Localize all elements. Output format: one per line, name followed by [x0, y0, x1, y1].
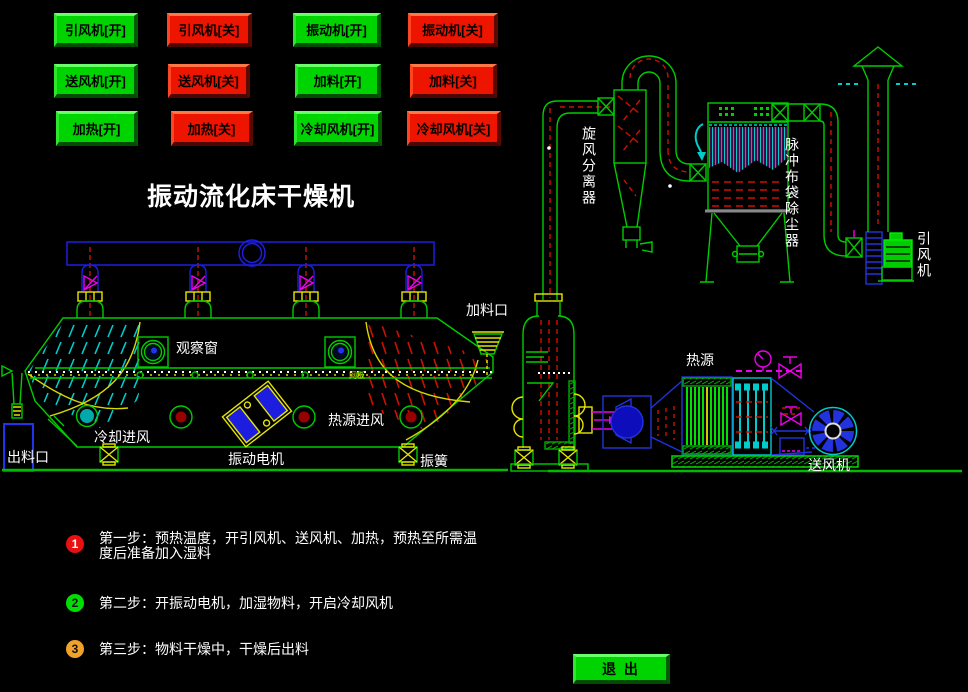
supply-fan	[810, 408, 857, 455]
observation-window-label: 观察窗	[176, 338, 218, 358]
induced-draft-fan-label: 引风机	[916, 231, 932, 279]
exhaust-stack-id-fan	[788, 47, 918, 284]
bag-filter-label: 脉冲布袋除尘器	[784, 137, 800, 249]
vibration-spring-label: 振簧	[420, 451, 448, 471]
feed-column	[543, 98, 614, 300]
cooling-air-inlet-label: 冷却进风	[94, 427, 150, 447]
cyclone-separator	[614, 56, 706, 252]
step-2-text: 第二步：开振动电机，加湿物料，开启冷却风机	[99, 596, 393, 611]
step-1-badge: 1	[66, 535, 84, 553]
step-3-text: 第三步：物料干燥中，干燥后出料	[99, 642, 309, 657]
dryer-manifold	[67, 240, 434, 266]
supply-fan-label: 送风机	[808, 455, 850, 475]
hot-air-inlet-label: 热源进风	[328, 410, 384, 430]
step-3-badge: 3	[66, 640, 84, 658]
feed-port-label: 加料口	[466, 300, 508, 320]
step-2-badge: 2	[66, 594, 84, 612]
step-1-text: 第一步：预热温度，开引风机、送风机、加热，预热至所需温度后准备加入湿料	[99, 531, 481, 561]
process-diagram	[0, 0, 968, 692]
scada-screen: 引风机[开] 引风机[关] 振动机[开] 振动机[关] 送风机[开] 送风机[关…	[0, 0, 968, 692]
mesh-plate-label: 网板	[349, 370, 365, 381]
discharge-port-label: 出料口	[7, 447, 49, 467]
cyclone-separator-label: 旋风分离器	[581, 126, 597, 206]
bag-filter	[696, 103, 794, 282]
heat-source-label: 热源	[686, 350, 714, 370]
dryer-risers	[77, 247, 427, 318]
vibration-motor-label: 振动电机	[228, 449, 284, 469]
observation-windows	[138, 337, 355, 367]
exit-button[interactable]: 退 出	[573, 654, 670, 684]
feed-vessel	[511, 294, 631, 471]
